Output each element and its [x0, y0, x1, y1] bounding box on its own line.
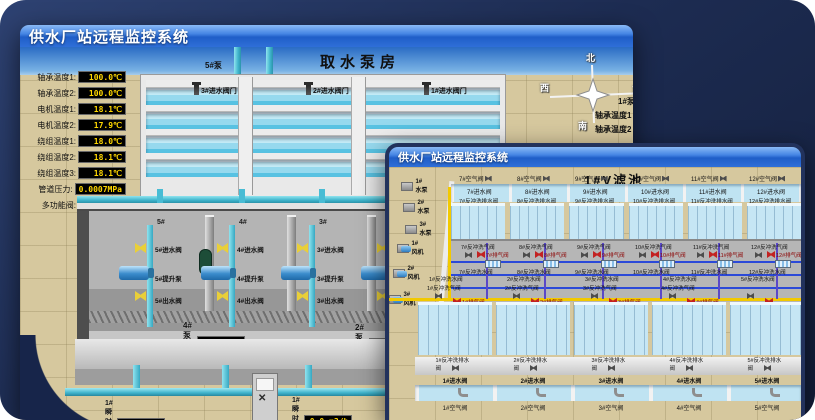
exhaust-valve-icon[interactable]	[477, 251, 485, 258]
readout-label: 多功能阀:	[26, 200, 78, 211]
machine-icon	[403, 203, 415, 212]
drain-valve-label: 1#反冲洗排水阀	[436, 356, 475, 372]
readout-value: 100.0℃	[78, 87, 126, 99]
filter-cell	[730, 302, 801, 355]
filter-cell	[629, 203, 683, 239]
machine-icon	[397, 244, 409, 253]
tank-icon	[601, 260, 617, 268]
back-window-titlebar[interactable]: 供水厂站远程监控系统	[20, 25, 633, 47]
backwash-valve-icon[interactable]	[435, 293, 442, 299]
gate-valve-icon	[306, 82, 311, 95]
readout-label: 绕组温度1:	[26, 136, 78, 147]
elbow-pipe-icon	[692, 388, 702, 397]
inlet-valve-label: 9#进水阀	[583, 187, 608, 196]
filter-cell	[510, 203, 564, 239]
readout-row: 电机温度1: 18.1℃	[26, 103, 126, 115]
readout-value: 18.1℃	[78, 167, 126, 179]
outlet-valve-label: 3#出水阀	[317, 295, 344, 305]
filter-bottom-cell: 3#反冲洗排水阀 3#进水阀 3#空气阀	[572, 302, 650, 414]
air-valve-label: 8#空气阀	[517, 174, 542, 183]
machine-icon	[405, 225, 417, 234]
tank-icon	[775, 260, 791, 268]
outlet-valve-icon[interactable]	[135, 291, 146, 301]
air-valve-icon[interactable]	[778, 176, 785, 182]
backwash-water-valve-label: 2#反冲洗水阀	[507, 275, 541, 283]
tank-icon	[717, 260, 733, 268]
backwash-air-valve-label: 11#反冲洗气阀	[693, 243, 729, 251]
air-valve-label-group: 8#空气阀	[517, 174, 550, 183]
machine-icon	[401, 182, 413, 191]
readout-value: 100.0℃	[78, 71, 126, 83]
air-valve-icon[interactable]	[485, 176, 492, 182]
elbow-pipe-icon	[458, 388, 468, 397]
tank-icon	[485, 260, 501, 268]
drain-valve-label: 4#反冲洗排水阀	[670, 356, 709, 372]
filter-cell	[574, 302, 648, 355]
inlet-valve-label: 2#进水阀	[521, 376, 546, 385]
filter-cell	[496, 302, 570, 355]
equipment-label: 2#水泵	[417, 200, 429, 215]
air-valve-label: 10#空气阀	[633, 174, 661, 183]
exhaust-valve-label: 8#排气阀	[544, 251, 567, 259]
compass-north-label: 北	[586, 51, 595, 64]
intake-valve[interactable]: 1#进水阀门	[424, 82, 467, 96]
readout-row: 轴承温度1: 100.0℃	[26, 71, 126, 83]
backwash-air-valve-label: 7#反冲洗气阀	[461, 243, 495, 251]
equipment-item[interactable]: 2#水泵	[403, 200, 430, 215]
compass-south-label: 南	[578, 119, 587, 132]
air-valve-label: 7#空气阀	[459, 174, 484, 183]
inlet-valve-label: 11#进水阀	[699, 187, 727, 196]
filter-cell	[451, 203, 505, 239]
air-valve-label: 4#空气阀	[677, 403, 702, 412]
inlet-valve-icon[interactable]	[217, 243, 228, 253]
inlet-valve-label: 3#进水阀	[599, 376, 624, 385]
backwash-water-valve-label: 3#反冲洗水阀	[585, 275, 619, 283]
air-valve-label: 1#空气阀	[443, 403, 468, 412]
lift-pump-label: 5#提升泵	[155, 273, 182, 283]
exhaust-valve-icon[interactable]	[535, 251, 543, 258]
readout-label: 绕组温度2:	[26, 152, 78, 163]
inlet-valve-label: 10#进水阀	[641, 187, 669, 196]
valve-cluster-top: 8#反冲洗气阀 8#排气阀 8#反冲洗水阀	[517, 243, 573, 275]
air-valve-label: 9#空气阀	[575, 174, 600, 183]
backwash-valve-icon[interactable]	[755, 252, 762, 258]
equipment-item[interactable]: 3#水泵	[405, 222, 432, 237]
inlet-valve-label: 7#进水阀	[467, 187, 492, 196]
backwash-air-valve-label: 1#反冲洗气阀	[427, 284, 461, 292]
backwash-valve-icon[interactable]	[465, 252, 472, 258]
front-window-titlebar[interactable]: 供水厂站远程监控系统	[389, 147, 801, 167]
lift-pump-label: 4#提升泵	[237, 273, 264, 283]
tank-icon	[659, 260, 675, 268]
compass-east-label: 东	[632, 83, 633, 96]
backwash-air-valve-label: 8#反冲洗气阀	[519, 243, 553, 251]
exhaust-valve-label: 7#排气阀	[486, 251, 509, 259]
air-valve-icon[interactable]	[601, 176, 608, 182]
backwash-valve-icon[interactable]	[513, 293, 520, 299]
intake-valve[interactable]: 3#进水阀门	[194, 82, 237, 96]
filter-bottom-cell: 2#反冲洗排水阀 2#进水阀 2#空气阀	[494, 302, 572, 414]
flow-meter-display	[256, 378, 274, 391]
readout-label: 电机温度2:	[26, 120, 78, 131]
readout-value: 18.0℃	[78, 135, 126, 147]
backwash-valve-icon[interactable]	[697, 252, 704, 258]
backwash-water-valve-label: 5#反冲洗水阀	[741, 275, 775, 283]
gate-valve-icon	[194, 82, 199, 95]
filter-bottom-cell: 4#反冲洗排水阀 4#进水阀 4#空气阀	[650, 302, 728, 414]
flow-readout: 1#瞬时流量: 0.0 m3/h	[292, 397, 352, 420]
readout-label: 轴承温度2:	[26, 88, 78, 99]
pump-5-label: 5#泵	[205, 60, 222, 71]
equipment-label: 2#风机	[407, 266, 419, 281]
filter-bottom-cell: 1#反冲洗排水阀 1#进水阀 1#空气阀	[416, 302, 494, 414]
inlet-valve-icon[interactable]	[135, 243, 146, 253]
machine-icon	[393, 269, 405, 278]
bay-number-label: 5#	[157, 219, 165, 226]
riser-pipe	[234, 47, 241, 77]
readout-row: 绕组温度1: 18.0℃	[26, 135, 126, 147]
lift-pump-label: 3#提升泵	[317, 273, 344, 283]
backwash-air-valve-label: 10#反冲洗气阀	[635, 243, 672, 251]
readout-value: 18.1℃	[78, 151, 126, 163]
inlet-valve-label: 4#进水阀	[237, 244, 264, 254]
backwash-air-valve-label: 3#反冲洗气阀	[583, 284, 617, 292]
readout-label: 管道压力:	[26, 184, 75, 195]
inlet-valve-label: 5#进水阀	[755, 376, 780, 385]
readout-row: 轴承温度2: 100.0℃	[26, 87, 126, 99]
backwash-air-valve-label: 2#反冲洗气阀	[505, 284, 539, 292]
exhaust-valve-icon[interactable]	[709, 251, 717, 258]
readout-value: 18.1℃	[78, 103, 126, 115]
backwash-air-valve-label: 9#反冲洗气阀	[577, 243, 611, 251]
outlet-valve-label: 5#出水阀	[155, 295, 182, 305]
outlet-valve-icon[interactable]	[217, 291, 228, 301]
inlet-valve-label: 12#进水阀	[757, 187, 785, 196]
exhaust-valve-icon[interactable]	[593, 251, 601, 258]
tank-icon	[543, 260, 559, 268]
equipment-label: 3#水泵	[419, 222, 431, 237]
readout-label: 轴承温度1	[595, 110, 633, 121]
air-valve-label-group: 10#空气阀	[633, 174, 669, 183]
pump-bay: 3# 3#进水阀 3#提升泵 3#出水阀	[277, 211, 367, 339]
backwash-valve-icon[interactable]	[639, 252, 646, 258]
gate-valve-icon	[424, 82, 429, 95]
exhaust-valve-icon[interactable]	[651, 251, 659, 258]
equipment-label: 1#风机	[411, 241, 423, 256]
air-valve-label: 3#空气阀	[599, 403, 624, 412]
lift-pump-icon[interactable]	[119, 266, 149, 280]
filter-cell	[652, 302, 726, 355]
valve-cluster-top: 9#反冲洗气阀 9#排气阀 9#反冲洗水阀	[575, 243, 631, 275]
lift-pump-icon[interactable]	[281, 266, 311, 280]
air-valve-label-group: 9#空气阀	[575, 174, 608, 183]
drain-valve-label: 3#反冲洗排水阀	[592, 356, 631, 372]
back-window-title: 供水厂站远程监控系统	[29, 26, 189, 47]
inlet-valve-label: 4#进水阀	[677, 376, 702, 385]
lift-pump-icon[interactable]	[201, 266, 231, 280]
riser-pipe	[266, 47, 273, 77]
outlet-valve-icon[interactable]	[297, 291, 308, 301]
inlet-valve-label: 1#进水阀	[443, 376, 468, 385]
valve-gallery: 7#反冲洗气阀 7#排气阀 7#反冲洗水阀 8#反冲洗气阀	[451, 239, 801, 302]
scene-corner-mask	[20, 335, 130, 420]
bay-number-label: 3#	[319, 219, 327, 226]
exhaust-valve-icon[interactable]	[767, 251, 775, 258]
air-valve-icon[interactable]	[720, 176, 727, 182]
valve-cluster-top: 10#反冲洗气阀 10#排气阀 10#反冲洗水阀	[633, 243, 689, 275]
window-filter-pool: 供水厂站远程监控系统 1#V滤池 1#水泵 2#水泵	[385, 143, 805, 420]
air-valve-label-group: 11#空气阀	[691, 174, 727, 183]
readout-row: 绕组温度3: 18.1℃	[26, 167, 126, 179]
filter-cell	[418, 302, 492, 355]
drain-valve-label: 2#反冲洗排水阀	[514, 356, 553, 372]
scene-title-intake: 取水泵房	[320, 51, 400, 72]
equipment-item[interactable]: 1#风机	[397, 241, 424, 256]
inlet-valve-icon[interactable]	[297, 243, 308, 253]
filter-cell	[747, 203, 801, 239]
backwash-valve-icon[interactable]	[581, 252, 588, 258]
intake-valve-label: 2#进水阀门	[313, 82, 349, 96]
valve-cluster-top: 12#反冲洗气阀 12#排气阀 12#反冲洗水阀	[749, 243, 801, 275]
intake-valve-label: 3#进水阀门	[201, 82, 237, 96]
readout-label: 绕组温度3:	[26, 168, 78, 179]
equipment-item[interactable]: 2#风机	[393, 266, 420, 281]
flow-meter-icon: ✕	[258, 393, 266, 404]
exhaust-valve-label: 10#排气阀	[660, 251, 686, 259]
backwash-valve-icon[interactable]	[591, 293, 598, 299]
readout-label: 轴承温度2	[595, 124, 633, 135]
air-valve-label-group: 7#空气阀	[459, 174, 492, 183]
scada-screen: 供水厂站远程监控系统 取水泵房	[0, 0, 815, 420]
air-valve-label: 11#空气阀	[691, 174, 719, 183]
intake-valve-label: 1#进水阀门	[431, 82, 467, 96]
air-valve-label: 12#空气阀	[749, 174, 777, 183]
valve-cluster-bottom: 5#反冲洗水阀	[739, 275, 795, 303]
bay-number-label: 4#	[239, 219, 247, 226]
equipment-item[interactable]: 1#水泵	[401, 179, 428, 194]
outlet-valve-label: 4#出水阀	[237, 295, 264, 305]
exhaust-valve-label: 9#排气阀	[602, 251, 625, 259]
front-window-title: 供水厂站远程监控系统	[398, 149, 508, 165]
readout-label: 电机温度1:	[26, 104, 78, 115]
valve-cluster-bottom: 4#反冲洗水阀 4#反冲洗气阀 4#排气阀	[661, 275, 717, 303]
elbow-pipe-icon	[770, 388, 780, 397]
readout-row: 电机温度2: 17.9℃	[26, 119, 126, 131]
readout-row: 绕组温度2: 18.1℃	[26, 151, 126, 163]
inlet-valve-label: 5#进水阀	[155, 244, 182, 254]
valve-cluster-top: 11#反冲洗气阀 11#排气阀 11#反冲洗水阀	[691, 243, 747, 275]
flow-value: 0.0 m3/h	[304, 415, 352, 420]
elbow-pipe-icon	[536, 388, 546, 397]
air-valve-label-group: 12#空气阀	[749, 174, 785, 183]
air-valve-label: 5#空气阀	[755, 403, 780, 412]
backwash-air-valve-label: 4#反冲洗气阀	[661, 284, 695, 292]
exhaust-valve-label: 12#排气阀	[776, 251, 801, 259]
filter-pool-scene: 1#V滤池 1#水泵 2#水泵	[389, 167, 801, 420]
backwash-water-valve-label: 1#反冲洗水阀	[429, 275, 463, 283]
air-valve-icon[interactable]	[662, 176, 669, 182]
backwash-air-valve-label: 12#反冲洗气阀	[751, 243, 788, 251]
readout-value: 17.9℃	[78, 119, 126, 131]
pump-bay: 4# 4#进水阀 4#提升泵 4#出水阀	[197, 211, 287, 339]
backwash-valve-icon[interactable]	[747, 293, 754, 299]
intake-valve[interactable]: 2#进水阀门	[306, 82, 349, 96]
flow-meter[interactable]: ✕	[252, 373, 278, 420]
drain-valve-label: 5#反冲洗排水阀	[748, 356, 787, 372]
backwash-valve-icon[interactable]	[523, 252, 530, 258]
compass-west-label: 西	[540, 81, 549, 94]
inlet-valve-label: 3#进水阀	[317, 244, 344, 254]
air-valve-label: 2#空气阀	[521, 403, 546, 412]
elbow-pipe-icon	[614, 388, 624, 397]
valve-cluster-bottom: 2#反冲洗水阀 2#反冲洗气阀 2#排气阀	[505, 275, 561, 303]
pump-1-label: 1#泵	[618, 96, 633, 107]
filter-cell	[569, 203, 623, 239]
valve-cluster-bottom: 3#反冲洗水阀 3#反冲洗气阀 3#排气阀	[583, 275, 639, 303]
inlet-valve-label: 8#进水阀	[525, 187, 550, 196]
pump-bay: 5# 5#进水阀 5#提升泵 5#出水阀	[115, 211, 205, 339]
backwash-water-valve-label: 4#反冲洗水阀	[663, 275, 697, 283]
equipment-label: 1#水泵	[415, 179, 427, 194]
filter-cell	[688, 203, 742, 239]
flow-label: 1#瞬时流量:	[292, 397, 301, 420]
readout-label: 轴承温度1:	[26, 72, 78, 83]
exhaust-valve-label: 11#排气阀	[718, 251, 743, 259]
filter-bottom-cell: 5#反冲洗排水阀 5#进水阀 5#空气阀	[728, 302, 801, 414]
air-valve-icon[interactable]	[543, 176, 550, 182]
backwash-valve-icon[interactable]	[669, 293, 676, 299]
upper-filter-cells	[451, 203, 801, 239]
valve-cluster-top: 7#反冲洗气阀 7#排气阀 7#反冲洗水阀	[459, 243, 515, 275]
valve-cluster-bottom: 1#反冲洗水阀 1#反冲洗气阀 1#排气阀	[427, 275, 483, 303]
